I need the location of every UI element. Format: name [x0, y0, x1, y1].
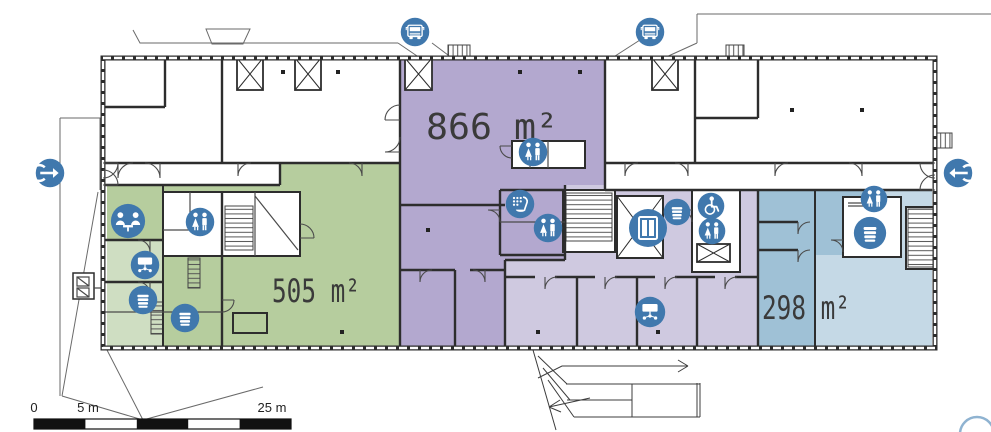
- presentation-icon[interactable]: [131, 251, 160, 280]
- coffee-icon[interactable]: [129, 286, 158, 315]
- meeting-room-icon[interactable]: [111, 204, 145, 238]
- floor-plan-svg: 866 m² 505 m² 298 m² 0 5 m 25: [0, 0, 991, 432]
- coffee-icon[interactable]: [171, 304, 200, 333]
- restroom-icon[interactable]: [861, 186, 888, 213]
- stairs-green: [225, 206, 253, 250]
- shaft-3: [405, 58, 432, 90]
- truck-icon[interactable]: [636, 18, 665, 47]
- elevator-icon[interactable]: [629, 209, 667, 247]
- scale-tick-5m: 5 m: [77, 400, 99, 415]
- coffee-icon[interactable]: [664, 199, 691, 226]
- shaft-1: [237, 58, 263, 90]
- truck-icon[interactable]: [401, 18, 430, 47]
- restroom-icon[interactable]: [699, 218, 726, 245]
- coffee-icon[interactable]: [854, 217, 886, 249]
- scale-tick-25m: 25 m: [258, 400, 287, 415]
- scale-tick-0: 0: [30, 400, 37, 415]
- area-label-505: 505 m²: [272, 272, 360, 310]
- restroom-icon[interactable]: [186, 208, 215, 237]
- shaft-2: [295, 58, 321, 90]
- access-ramp: [533, 350, 700, 430]
- exterior-stair-right: [936, 133, 952, 148]
- restroom-icon[interactable]: [534, 214, 563, 243]
- scale-bar: 0 5 m 25 m: [30, 400, 291, 429]
- cleaning-icon[interactable]: [506, 190, 535, 219]
- stairs-right: [908, 209, 934, 267]
- shaft-4: [652, 58, 678, 90]
- shaft-5: [697, 244, 730, 262]
- area-label-298: 298 m²: [762, 289, 850, 327]
- presentation-icon[interactable]: [635, 297, 665, 327]
- radiator-1: [188, 258, 200, 288]
- restroom-icon[interactable]: [519, 138, 548, 167]
- accessible-icon[interactable]: [698, 193, 725, 220]
- ramp-arrow-right: [538, 360, 688, 378]
- entrance-right-icon[interactable]: [31, 159, 64, 188]
- stairs-mid: [566, 193, 612, 241]
- entrance-left-icon[interactable]: [944, 159, 977, 188]
- compass-arc: [960, 417, 991, 432]
